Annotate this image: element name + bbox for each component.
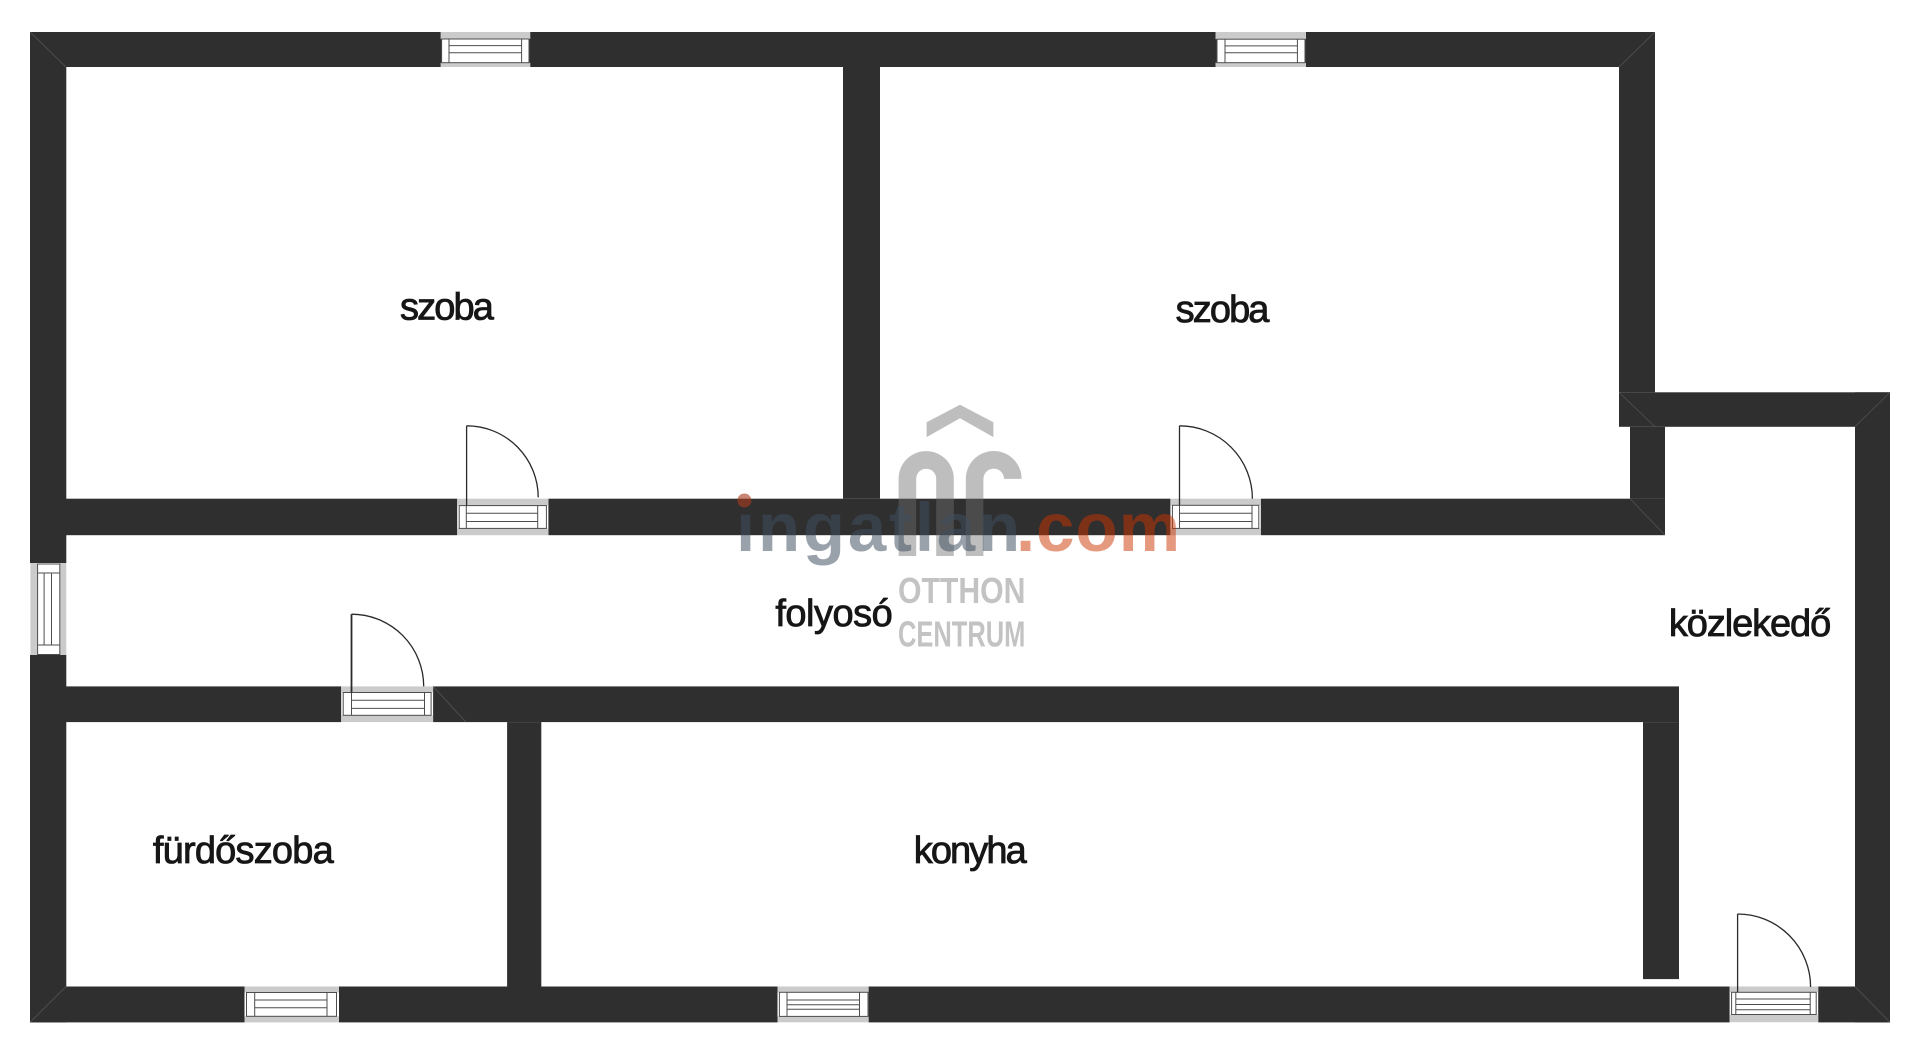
svg-text:OTTHON: OTTHON [898, 571, 1026, 611]
svg-text:konyha: konyha [914, 830, 1028, 872]
svg-text:szoba: szoba [1176, 289, 1271, 331]
svg-text:közlekedő: közlekedő [1669, 603, 1830, 645]
svg-text:CENTRUM: CENTRUM [898, 614, 1025, 655]
svg-text:.com: .com [1016, 489, 1181, 566]
svg-text:szoba: szoba [400, 287, 495, 329]
svg-text:fürdőszoba: fürdőszoba [153, 830, 335, 872]
svg-text:ıngatlan: ıngatlan [736, 489, 1023, 566]
svg-text:folyosó: folyosó [775, 593, 892, 635]
